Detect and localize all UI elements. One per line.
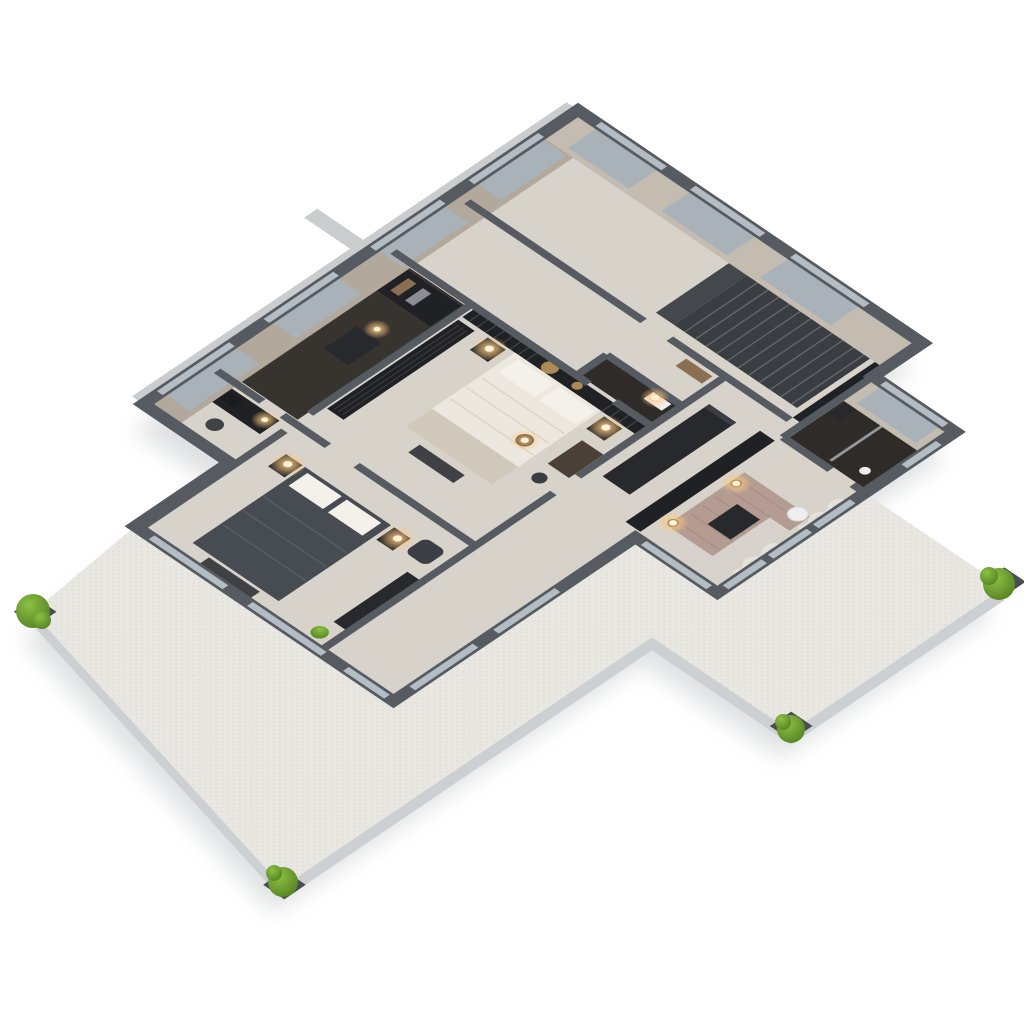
floor-plan-render (0, 0, 1024, 1024)
floor-plan-svg (0, 0, 1024, 1024)
shrub-west (16, 594, 51, 629)
